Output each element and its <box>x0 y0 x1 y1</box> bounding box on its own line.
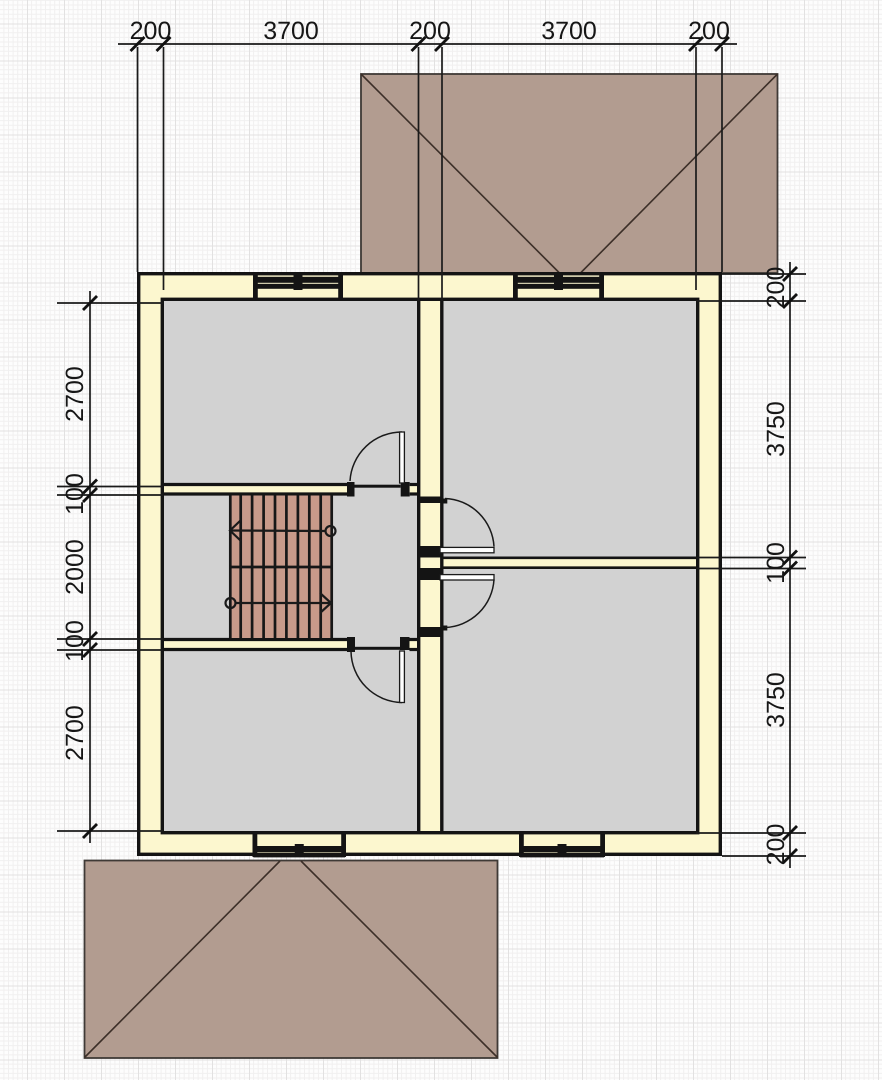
svg-text:2700: 2700 <box>61 366 89 422</box>
svg-text:2700: 2700 <box>61 705 89 761</box>
svg-text:2000: 2000 <box>61 539 89 595</box>
svg-text:3700: 3700 <box>263 17 319 45</box>
svg-text:200: 200 <box>130 17 172 45</box>
svg-text:100: 100 <box>61 473 89 515</box>
svg-text:3750: 3750 <box>762 672 790 728</box>
svg-text:100: 100 <box>61 620 89 662</box>
svg-text:100: 100 <box>762 542 790 584</box>
svg-text:3700: 3700 <box>541 17 597 45</box>
svg-text:3750: 3750 <box>762 401 790 457</box>
svg-text:200: 200 <box>688 17 730 45</box>
svg-text:200: 200 <box>762 267 790 309</box>
svg-text:200: 200 <box>762 824 790 866</box>
svg-text:200: 200 <box>409 17 451 45</box>
